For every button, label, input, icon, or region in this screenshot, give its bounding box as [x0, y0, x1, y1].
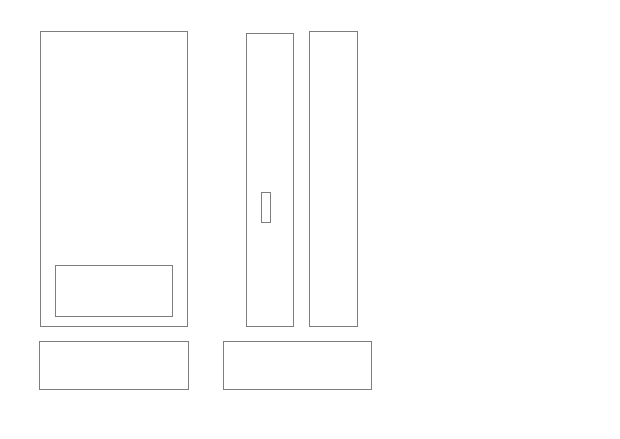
left-base-outline	[39, 341, 189, 390]
large-cabinet-inset-panel	[55, 265, 173, 317]
center-base-outline	[223, 341, 372, 390]
narrow-door-left-outline	[246, 33, 294, 327]
narrow-door-handle	[261, 192, 271, 223]
narrow-door-right-outline	[309, 31, 358, 327]
diagram-canvas	[0, 0, 620, 439]
